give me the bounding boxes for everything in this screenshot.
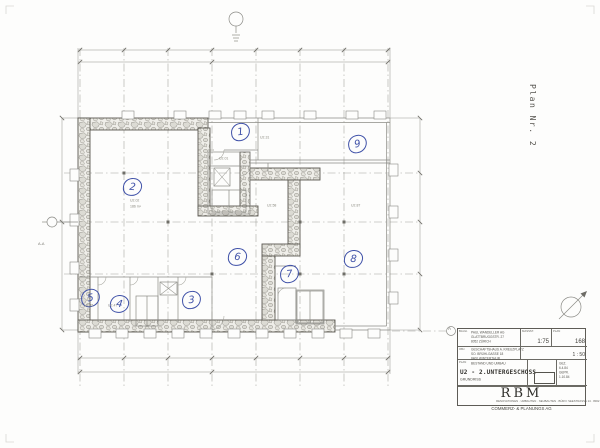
scanned-floor-plan-sheet: Plan Nr. 2 A-A A 123456789 U2.02186 m²U2…	[0, 0, 600, 448]
secondary-stairs	[136, 282, 323, 326]
scale-label: MASSST.	[522, 330, 534, 333]
window-openings	[70, 111, 398, 338]
interior-walls	[80, 118, 390, 330]
drawing-line1: BESTAND UND UMBAU	[471, 362, 506, 367]
drawing-subtitle: GRUNDRISS	[460, 378, 481, 382]
client-line: 8052 ZÜRICH	[471, 340, 504, 345]
client-label: BAUH.	[459, 330, 468, 333]
stamp-box	[534, 372, 555, 384]
title-block: BAUH. PAUL WANDELLER AG GLATTBRUGGSTR. 2…	[457, 328, 586, 406]
grid-bubble-a	[392, 327, 456, 336]
scale-value: 1:75	[537, 339, 549, 345]
firm-logo-text: RBM	[458, 387, 585, 400]
firm-subname: COMMERZ- & PLANUNGS AG	[482, 407, 561, 411]
plan-box-value: 168	[575, 339, 585, 345]
firm-block: RBM RENOVATIONEN · UMBAUTEN · NEUBAUTEN …	[458, 386, 585, 408]
drawing-title: U2 - 2.UNTERGESCHOSS	[460, 369, 536, 376]
drawing-label: PLAN	[459, 361, 466, 364]
project-label: OBJ.	[459, 348, 465, 351]
column-markers	[123, 172, 346, 276]
title-block-client-cell: BAUH. PAUL WANDELLER AG GLATTBRUGGSTR. 2…	[458, 329, 521, 347]
title-block-revision-cell: GEZ. 6.4.84 GEPR. 1.10.84	[557, 360, 587, 386]
north-symbol-icon	[229, 12, 243, 41]
north-arrow-icon	[559, 291, 587, 319]
revision-line: 1.10.84	[559, 376, 570, 381]
plan-box-label: PLAN	[553, 330, 560, 333]
title-block-drawing-cell: PLAN BESTAND UND UMBAU U2 - 2.UNTERGESCH…	[458, 360, 528, 386]
title-block-project-cell: OBJ. GESCHÄFTSHAUS A. KREUZPLATZ SO. BRÜ…	[458, 347, 521, 360]
title-block-scale2-cell: 1 : 50	[521, 347, 587, 360]
title-block-stamp-cell	[528, 360, 557, 386]
scale2-value: 1 : 50	[572, 352, 585, 358]
title-block-scale-cell: MASSST. 1:75	[521, 329, 552, 347]
title-block-plan-cell: PLAN 168	[552, 329, 587, 347]
firm-tagline: RENOVATIONEN · UMBAUTEN · NEUBAUTEN · BÜ…	[496, 400, 547, 403]
